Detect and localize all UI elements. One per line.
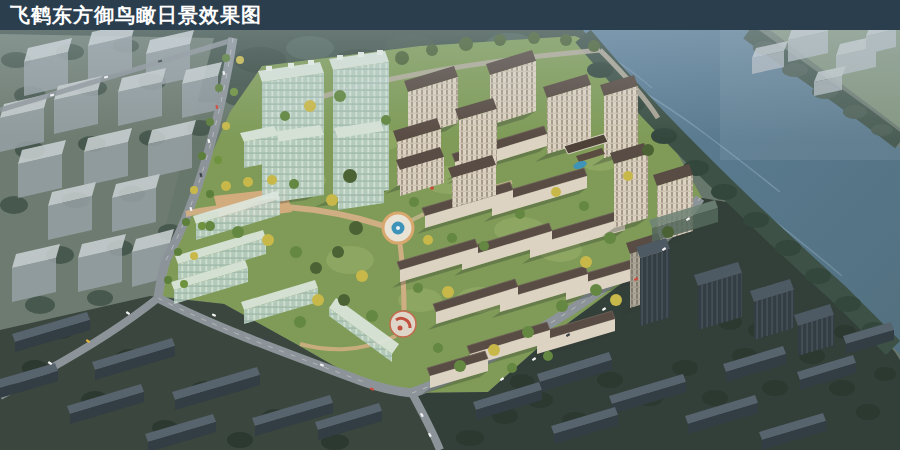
page-title: 飞鹤东方御鸟瞰日景效果图 — [0, 2, 262, 29]
render-viewport: 飞鹤东方御鸟瞰日景效果图 — [0, 0, 900, 450]
far-haze — [720, 30, 900, 160]
title-bar: 飞鹤东方御鸟瞰日景效果图 — [0, 0, 900, 30]
aerial-rendering — [0, 0, 900, 450]
playground — [390, 311, 416, 337]
